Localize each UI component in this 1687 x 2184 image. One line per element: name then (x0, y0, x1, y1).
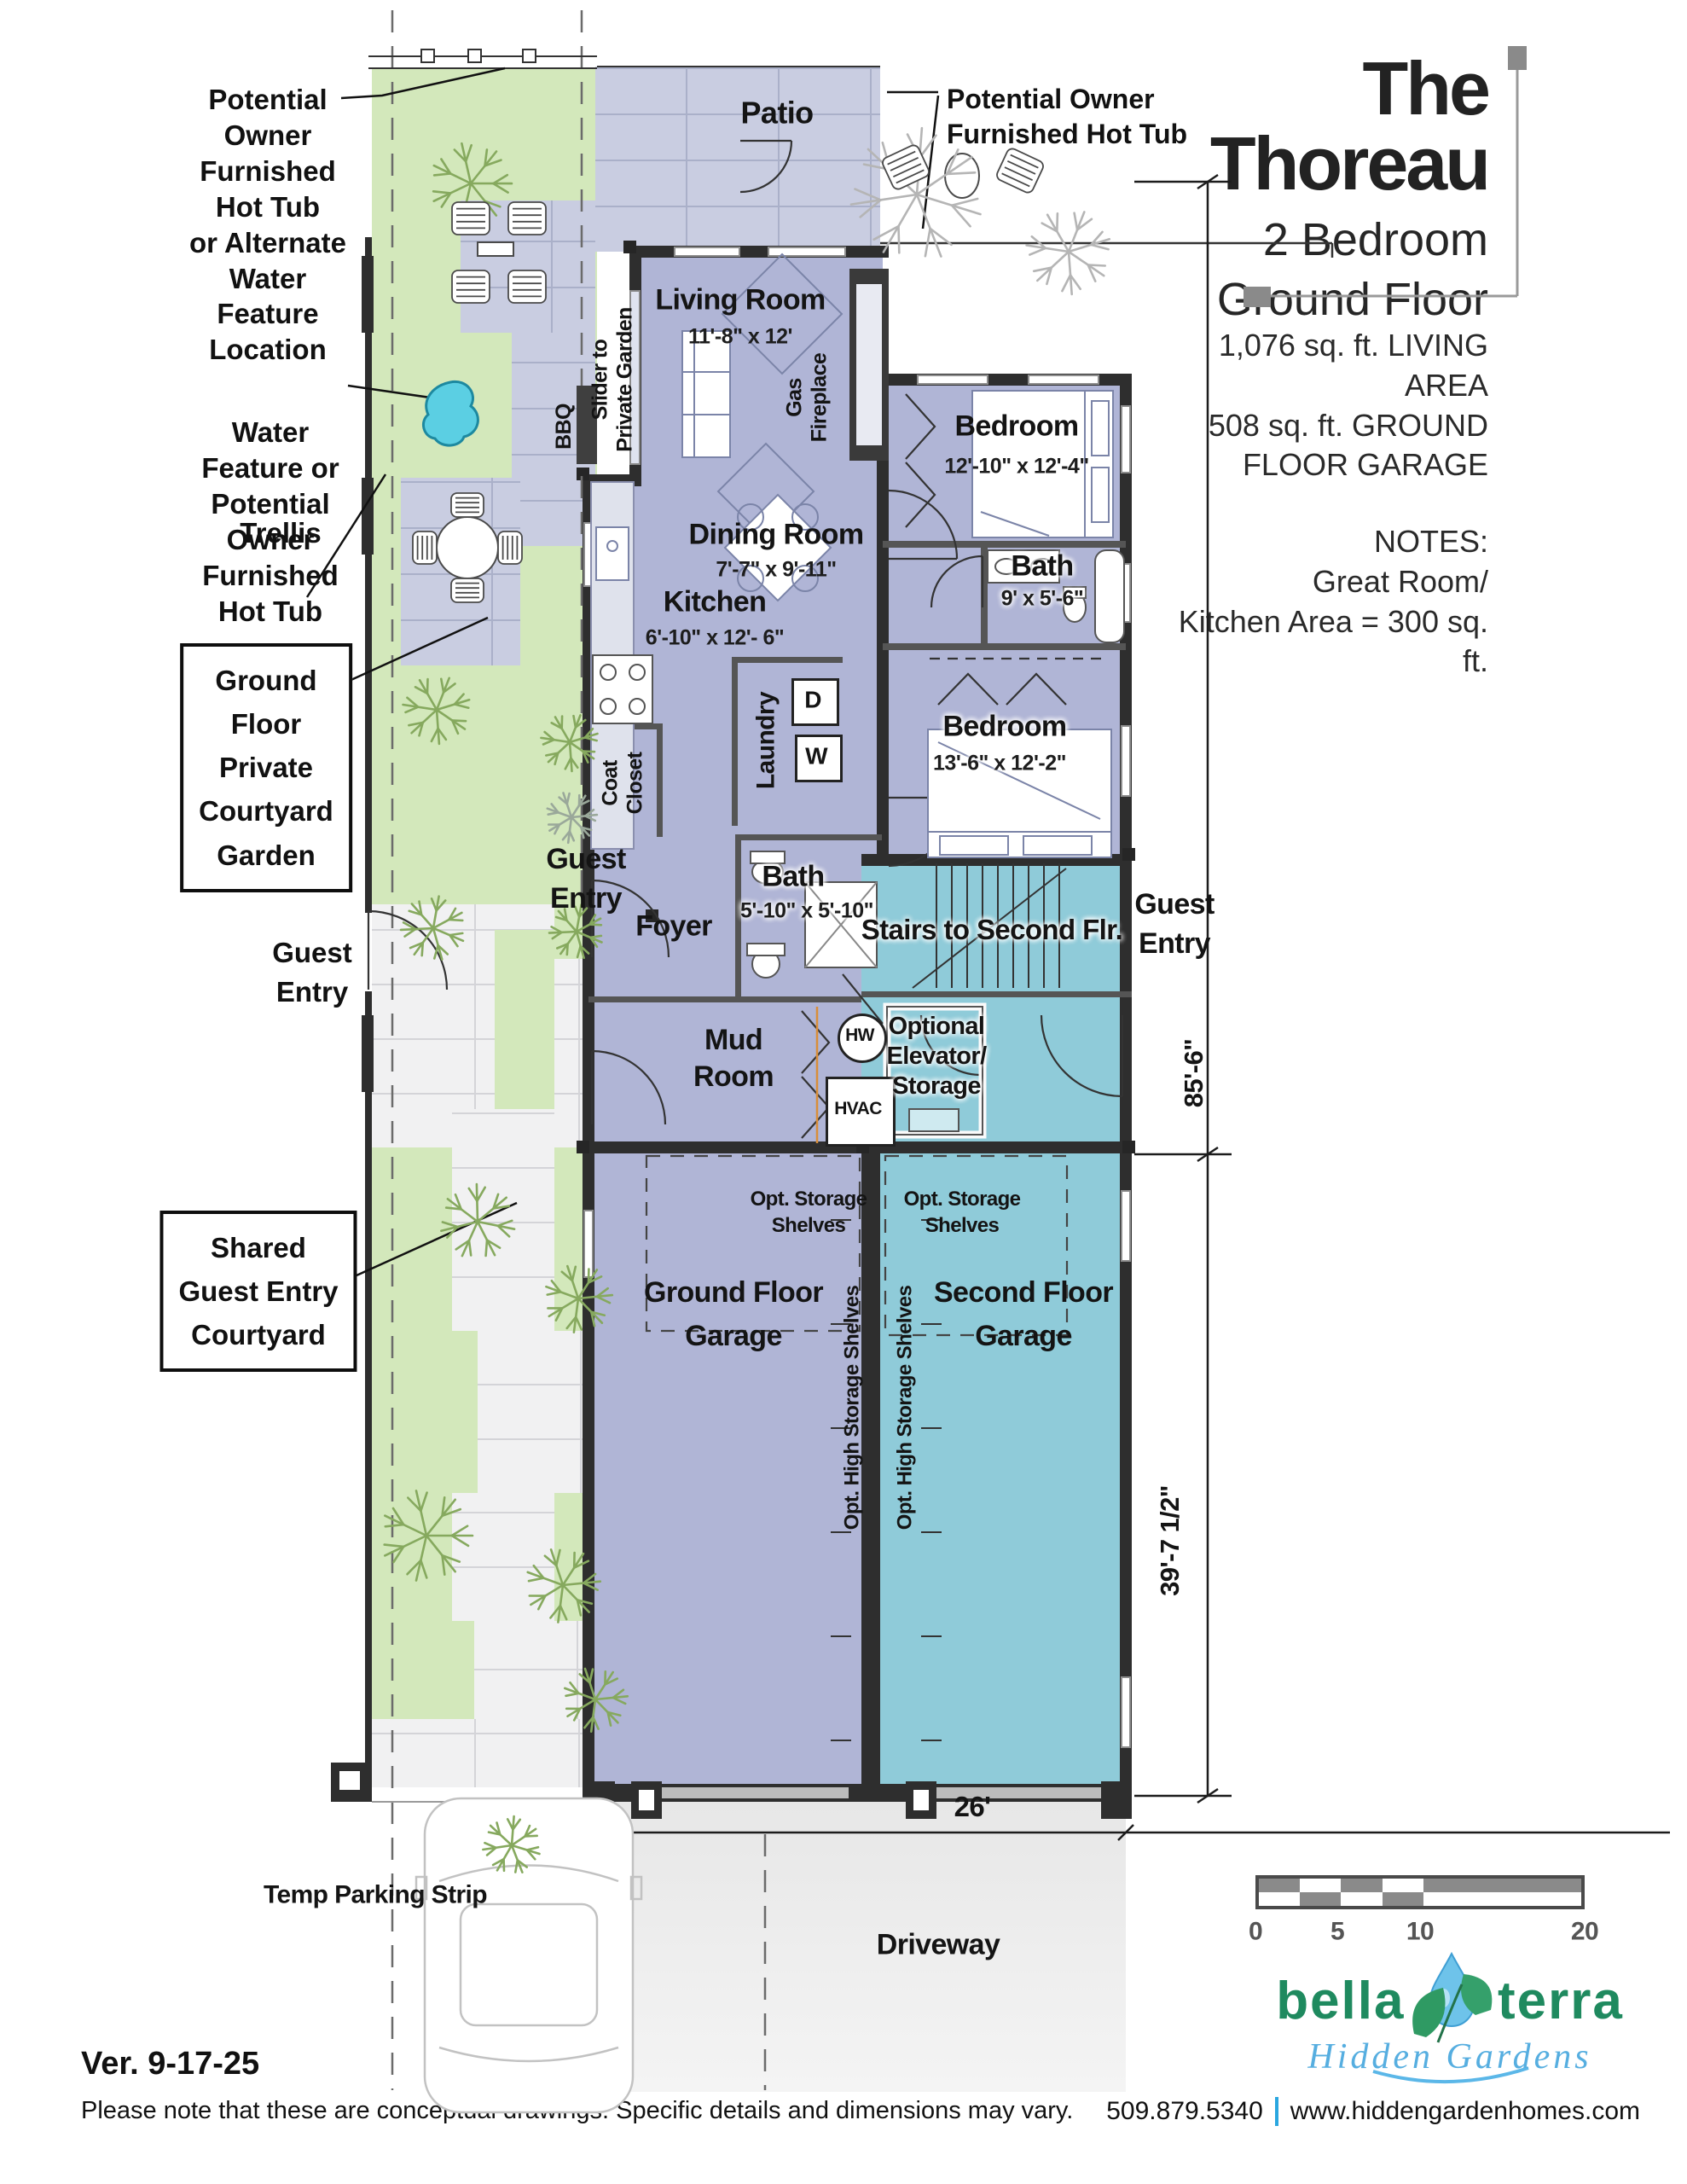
bracket-square-left (1244, 287, 1271, 307)
bath2-label: Bath (762, 862, 824, 892)
slider-label: Slider to Private Garden (588, 307, 637, 451)
mud-room-label: Mud Room (693, 1022, 774, 1095)
chair-icon (508, 202, 546, 235)
dimension-lines (587, 175, 1670, 1846)
living-label: Living Room (655, 285, 825, 315)
annotation-shared-box: Shared Guest Entry Courtyard (159, 1211, 357, 1372)
tree-icon (548, 793, 597, 843)
hvac-label: HVAC (834, 1100, 882, 1118)
bracket-square-top (1508, 46, 1527, 70)
chair-icon (508, 270, 546, 303)
ground-garage-label: Ground Floor Garage (644, 1271, 823, 1358)
scale-tick-0: 0 (1249, 1918, 1262, 1944)
annotation-hot-tub-right: Potential Owner Furnished Hot Tub (947, 82, 1187, 151)
second-garage-label: Second Floor Garage (934, 1271, 1113, 1358)
patio-label: Patio (740, 96, 813, 128)
laundry-label: Laundry (752, 692, 779, 789)
high-storage-left-label: Opt. High Storage Shelves (843, 1286, 864, 1530)
bath1-label: Bath (1011, 551, 1073, 581)
logo-tagline: Hidden Gardens (1271, 2036, 1629, 2077)
tree-icon (528, 1549, 600, 1622)
bedroom1-dims: 12'-10" x 12'-4" (944, 455, 1088, 479)
storage-right-label: Opt. Storage Shelves (904, 1186, 1021, 1239)
right-fence (880, 243, 1332, 258)
chair-icon (881, 143, 931, 191)
tree-icon (403, 678, 470, 744)
chair-icon (452, 270, 490, 303)
dining-dims: 7'-7" x 9'-11" (716, 558, 836, 583)
tree-icon (401, 897, 463, 960)
kitchen-label: Kitchen (664, 587, 766, 617)
washer-label: W (805, 743, 827, 768)
annotation-hot-tub-alt: Potential Owner Furnished Hot Tub or Alt… (189, 82, 346, 368)
high-storage-right-label: Opt. High Storage Shelves (896, 1286, 917, 1530)
tree-icon (546, 1266, 612, 1333)
tree-icon (565, 1669, 628, 1732)
water-feature-pond (423, 381, 478, 445)
bbq-label: BBQ (553, 404, 575, 450)
tree-icon (1027, 212, 1110, 294)
guest-entry-mid-label: Guest Entry (546, 840, 625, 919)
scale-tick-20: 20 (1571, 1918, 1598, 1944)
bath1-dims: 9' x 5'-6" (1001, 587, 1084, 612)
tree-icon (541, 715, 597, 771)
bedroom2-dims: 13'-6" x 12'-2" (933, 752, 1066, 776)
driveway-label: Driveway (877, 1930, 1000, 1960)
brand-logo: bella terra Hidden Gardens (1271, 1971, 1629, 2077)
chair-icon (498, 531, 522, 564)
title-bracket (1259, 68, 1517, 296)
kitchen-dims: 6'-10" x 12'- 6" (646, 626, 784, 651)
tree-icon (441, 1184, 514, 1256)
hw-label: HW (845, 1026, 874, 1045)
dining-label: Dining Room (689, 520, 864, 549)
guest-entry-left-label: Guest Entry (272, 933, 352, 1012)
living-dims: 11'-8" x 12' (688, 325, 792, 350)
stairs-label: Stairs to Second Flr. (861, 915, 1122, 944)
logo-word-bella: bella (1276, 1972, 1405, 2030)
chair-icon (995, 147, 1046, 195)
bedroom1-label: Bedroom (954, 411, 1078, 441)
car-icon (416, 1798, 641, 2112)
bath2-dims: 5'-10" x 5'-10" (740, 899, 873, 924)
top-fence (368, 49, 880, 68)
floor-plan-sheet: HW HVAC D W (0, 0, 1687, 2184)
guest-entry-right-label: Guest Entry (1134, 886, 1214, 964)
tree-icon (385, 1490, 472, 1580)
coat-closet-label: Coat Closet (598, 752, 647, 815)
temp-parking-label: Temp Parking Strip (264, 1881, 487, 1908)
chair-icon (451, 578, 484, 602)
dryer-label: D (804, 687, 821, 712)
dim-upper-label: 85'-6" (1180, 1039, 1208, 1108)
scale-tick-5: 5 (1330, 1918, 1344, 1944)
elevator-label: Optional Elevator/ Storage (886, 1012, 986, 1101)
foyer-label: Foyer (635, 911, 712, 941)
chair-icon (452, 202, 490, 235)
scale-tick-10: 10 (1406, 1918, 1434, 1944)
storage-left-label: Opt. Storage Shelves (751, 1186, 867, 1239)
chair-icon (451, 493, 484, 517)
chair-icon (413, 531, 437, 564)
logo-word-terra: terra (1498, 1972, 1624, 2030)
annotation-trellis: Trellis (240, 515, 321, 551)
annotation-courtyard-box: Ground Floor Private Courtyard Garden (180, 643, 352, 892)
dim-width-label: 26' (954, 1792, 991, 1821)
dim-lower-label: 39'-7 1/2" (1157, 1485, 1184, 1596)
bedroom2-label: Bedroom (942, 712, 1066, 741)
gas-fireplace-label: Gas Fireplace (782, 353, 832, 442)
